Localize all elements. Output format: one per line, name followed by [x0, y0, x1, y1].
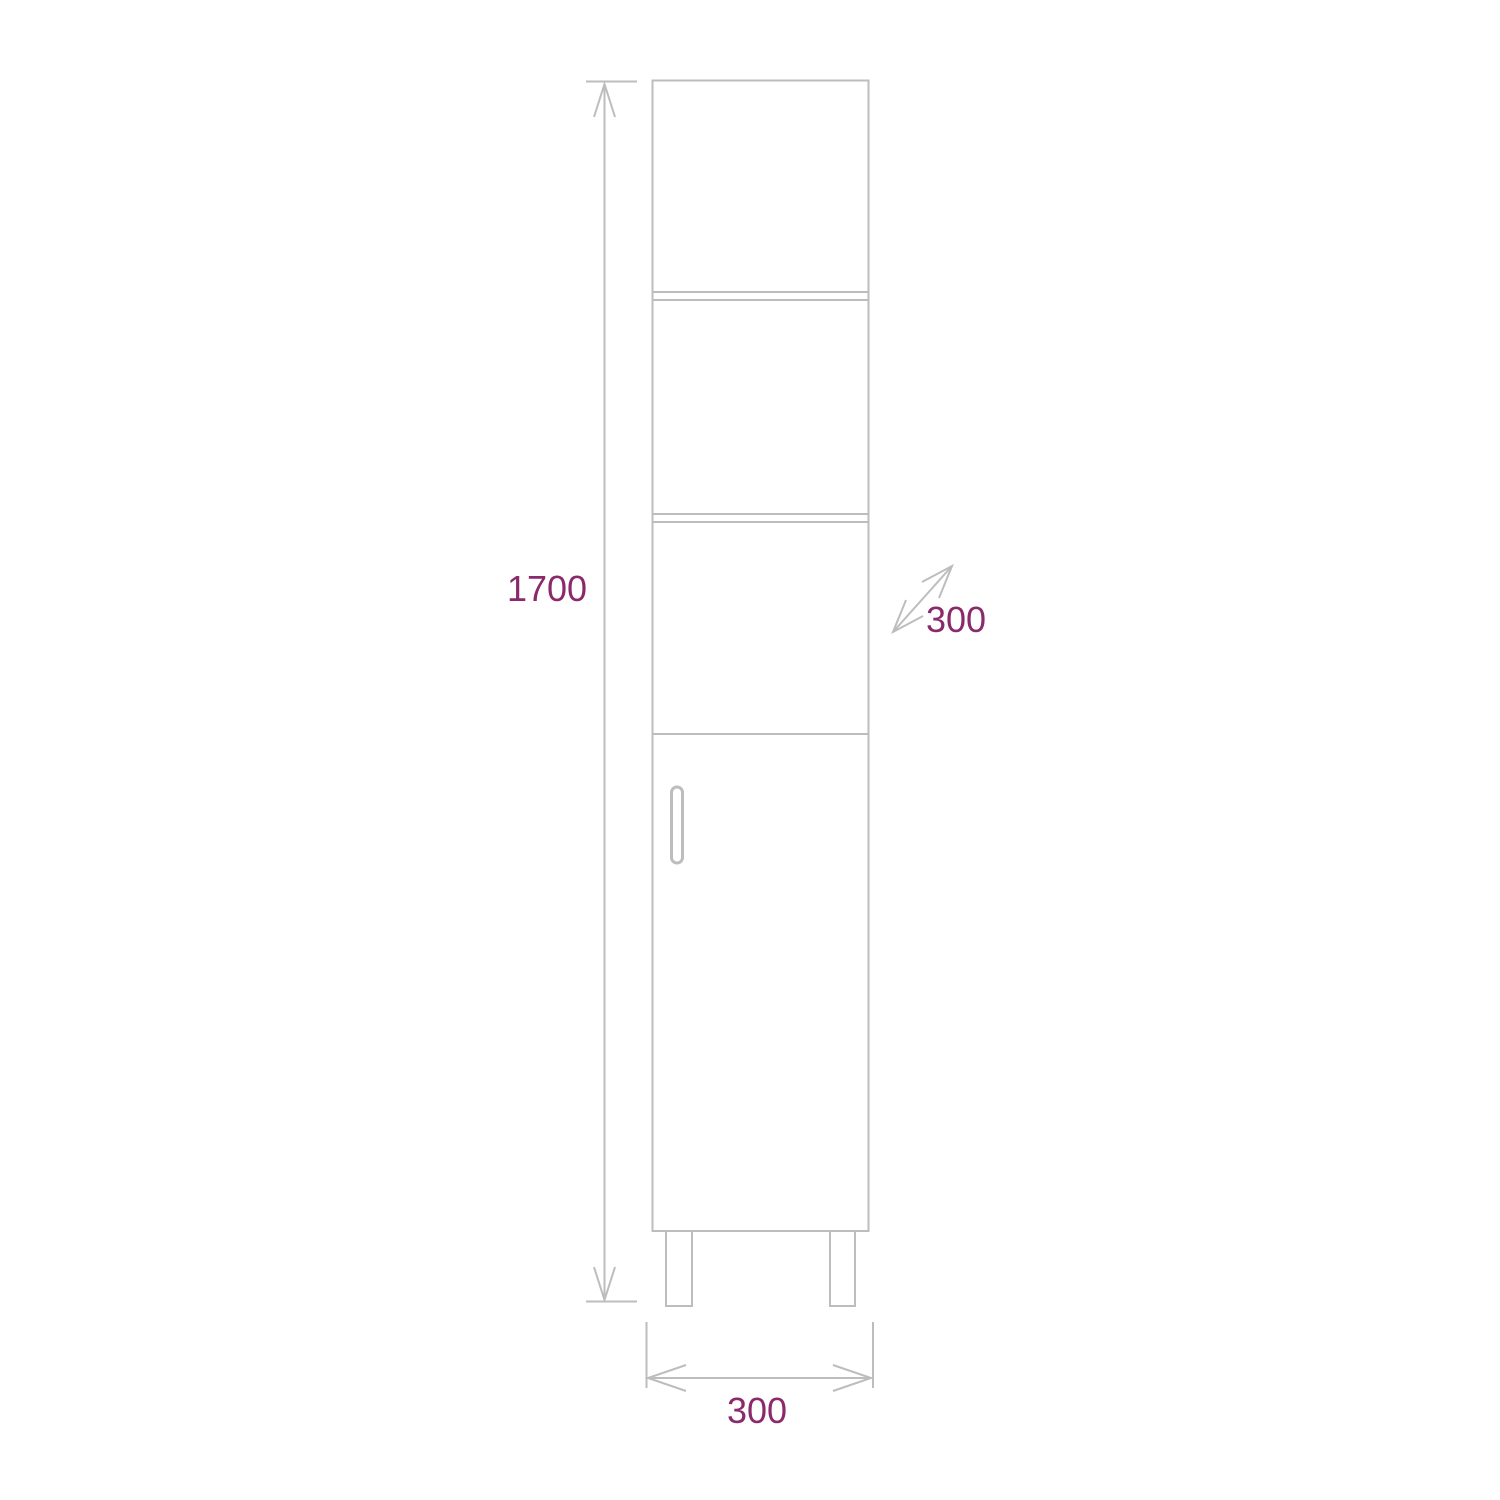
drawing-canvas: 1700 300 300 [0, 0, 1500, 1500]
door-handle [672, 787, 683, 863]
depth-dimension: 300 [893, 566, 986, 640]
cabinet-dimension-diagram: 1700 300 300 [0, 0, 1500, 1500]
width-dim-label: 300 [727, 1390, 787, 1431]
height-dimension: 1700 [507, 82, 637, 1302]
width-dimension: 300 [647, 1322, 874, 1431]
right-leg [830, 1231, 855, 1306]
depth-dim-label: 300 [926, 599, 986, 640]
height-dim-label: 1700 [507, 568, 587, 609]
cabinet-body [653, 81, 869, 1307]
cabinet-outline [653, 81, 869, 1232]
left-leg [666, 1231, 692, 1306]
